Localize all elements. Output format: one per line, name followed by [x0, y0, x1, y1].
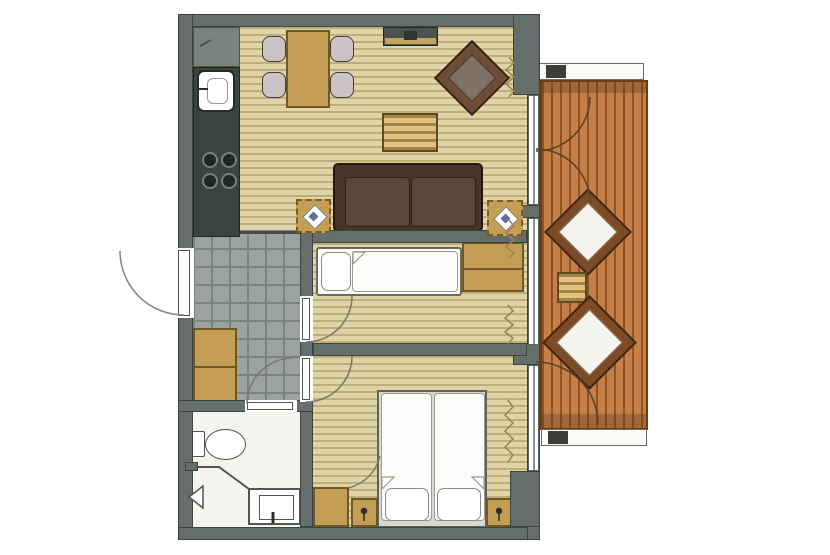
balcony-side-table	[557, 272, 587, 303]
dining-chair	[330, 36, 354, 62]
lounge-chair-2-cushion	[556, 309, 622, 375]
threshold-hall-living	[240, 231, 300, 234]
sofa-cushion	[345, 177, 410, 227]
nightstand-left	[351, 498, 378, 527]
wardrobe-divider	[464, 268, 522, 270]
glazing-line	[533, 366, 535, 470]
lounge-chair-1-cushion	[558, 202, 617, 261]
stove-burner	[202, 173, 218, 189]
stove-burner	[202, 152, 218, 168]
dining-chair	[262, 36, 286, 62]
bedroom-wardrobe	[313, 487, 349, 527]
entrance-door-leaf	[178, 250, 190, 316]
window-children-room	[528, 218, 539, 345]
cabinet-divider	[195, 366, 235, 368]
balcony-deck-edge-bottom	[542, 414, 646, 428]
wall-bathroom-stub	[185, 462, 198, 471]
planter-box-bottom	[548, 431, 568, 444]
refrigerator	[193, 27, 240, 67]
tv-sideboard	[383, 27, 438, 46]
bedroom-door-leaf	[302, 358, 310, 400]
nightstand-right	[486, 498, 513, 527]
window-living-balcony-door	[528, 95, 539, 205]
children-door-leaf	[302, 298, 310, 340]
sofa-cushion	[411, 177, 476, 227]
children-wardrobe	[462, 242, 524, 292]
dining-chair	[330, 72, 354, 98]
coffee-table	[382, 113, 438, 152]
floor-cushion-right	[487, 200, 523, 236]
bed-pillow-left	[385, 488, 429, 521]
wall-pier-top-right	[513, 14, 540, 95]
glazing-line	[533, 219, 535, 344]
planter-box-top	[546, 65, 566, 78]
kitchen-sink	[197, 70, 235, 112]
wall-pier-bottom-right	[510, 471, 540, 527]
floor-plan	[0, 0, 830, 555]
sink-basin	[207, 78, 228, 104]
entrance-door-arc	[120, 251, 184, 315]
wall-top	[178, 14, 540, 27]
dining-table	[286, 30, 330, 108]
shower-tray	[248, 488, 301, 525]
balcony-deck-edge-top	[542, 82, 646, 93]
hall-cabinet	[193, 328, 237, 405]
toilet-bowl	[205, 429, 246, 460]
dining-chair	[262, 72, 286, 98]
floor-cushion-left	[296, 199, 331, 233]
wall-children-bedroom-divider	[313, 343, 527, 356]
bed-pillow-right	[437, 488, 481, 521]
single-bed-pillow	[321, 252, 351, 291]
glazing-line	[533, 96, 535, 204]
bathroom-door-leaf	[247, 402, 293, 410]
single-bed-mattress	[352, 251, 458, 292]
wall-bottom	[178, 527, 540, 540]
armchair-seat	[448, 54, 496, 102]
toilet-tank	[191, 431, 205, 457]
sofa	[333, 163, 483, 232]
tv-icon	[404, 31, 417, 40]
window-bedroom-balcony-door	[528, 365, 539, 471]
stove-burner	[221, 173, 237, 189]
stove-burner	[221, 152, 237, 168]
shower-tray-inner	[259, 495, 294, 520]
